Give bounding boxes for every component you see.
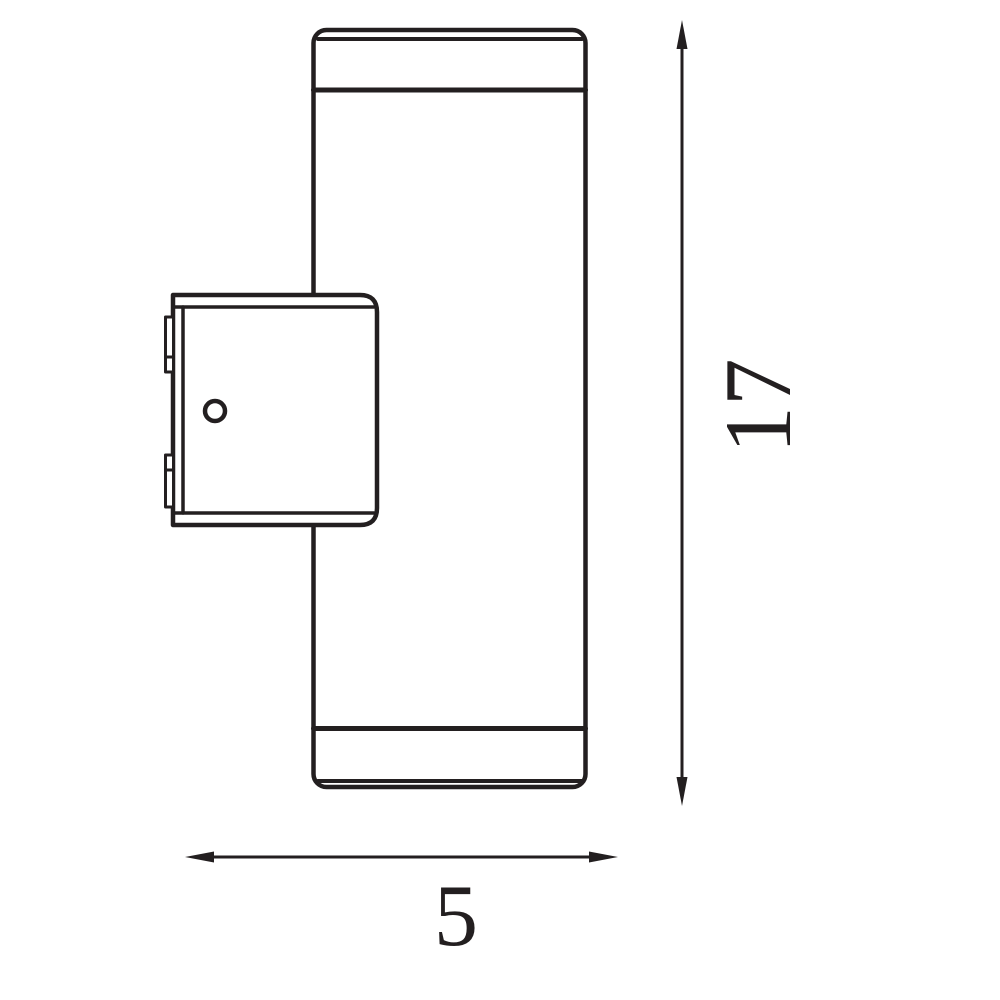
- width-dimension-label: 5: [434, 868, 478, 965]
- height-dimension-label: 17: [705, 359, 811, 454]
- width-dimension: 5: [185, 852, 618, 966]
- mounting-clip-bottom: [166, 455, 174, 507]
- drawing-canvas: 17 5: [0, 0, 1000, 1000]
- arrowhead-left-icon: [185, 852, 214, 863]
- height-dimension: 17: [677, 20, 812, 806]
- arrowhead-up-icon: [677, 20, 688, 49]
- arrowhead-down-icon: [677, 777, 688, 806]
- arrowhead-right-icon: [589, 852, 618, 863]
- mounting-box: [166, 295, 378, 525]
- technical-drawing: 17 5: [0, 0, 1000, 1000]
- mounting-clip-top: [166, 317, 174, 372]
